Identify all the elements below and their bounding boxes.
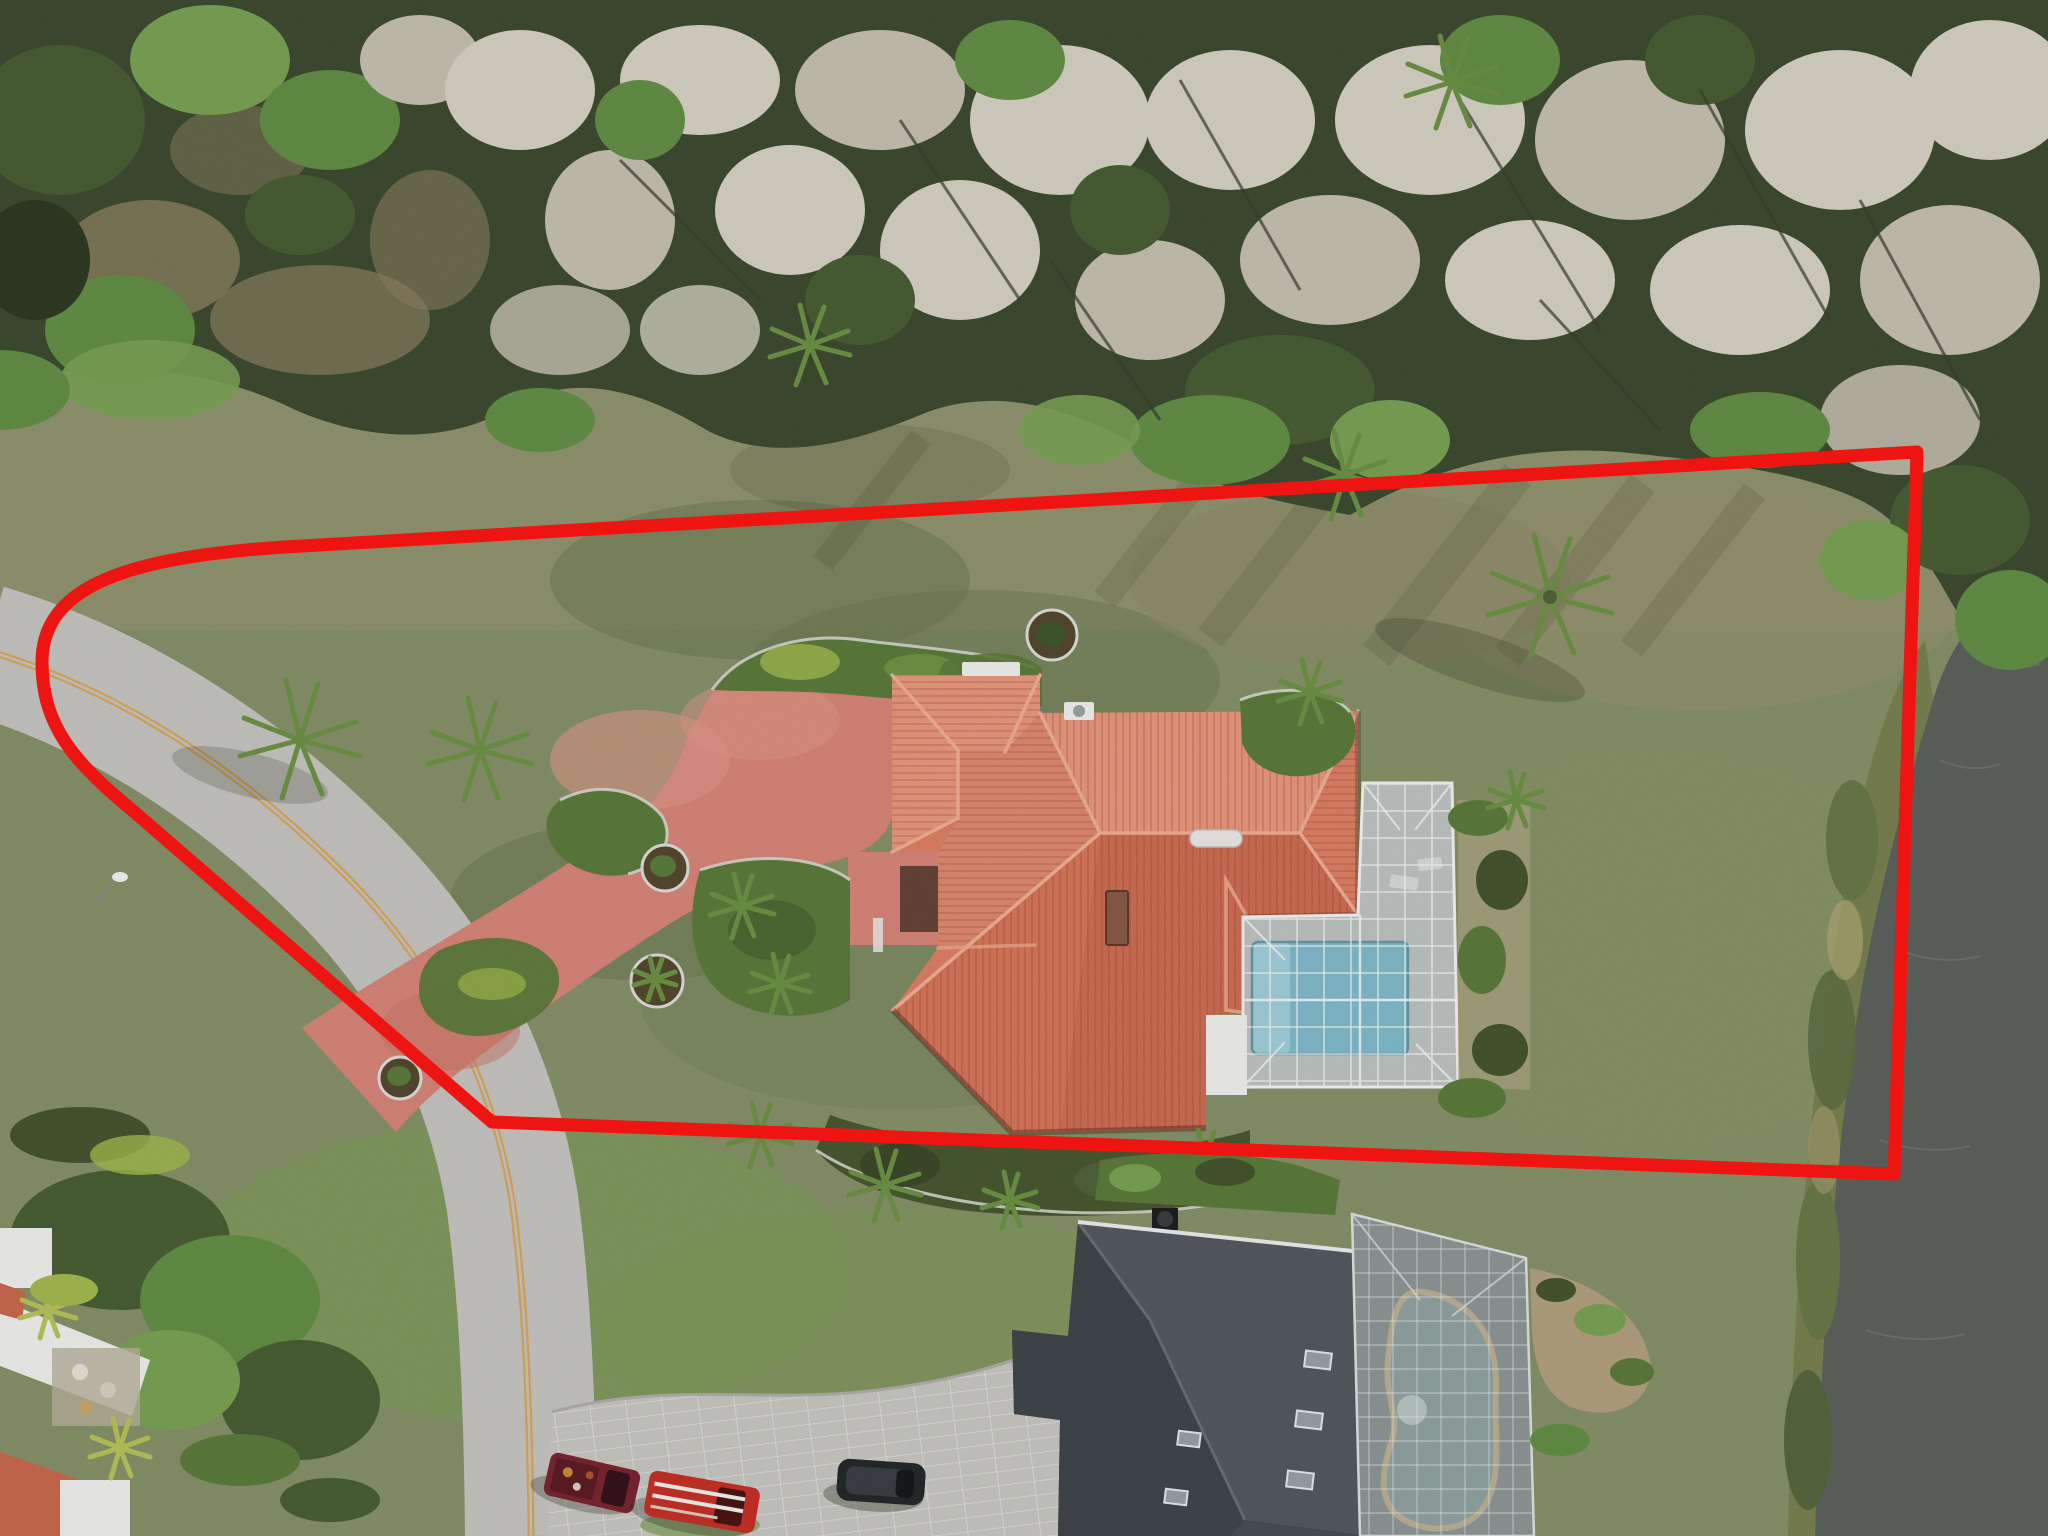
film-grain [0,0,2048,1536]
aerial-scene [0,0,2048,1536]
aerial-photo-canvas [0,0,2048,1536]
